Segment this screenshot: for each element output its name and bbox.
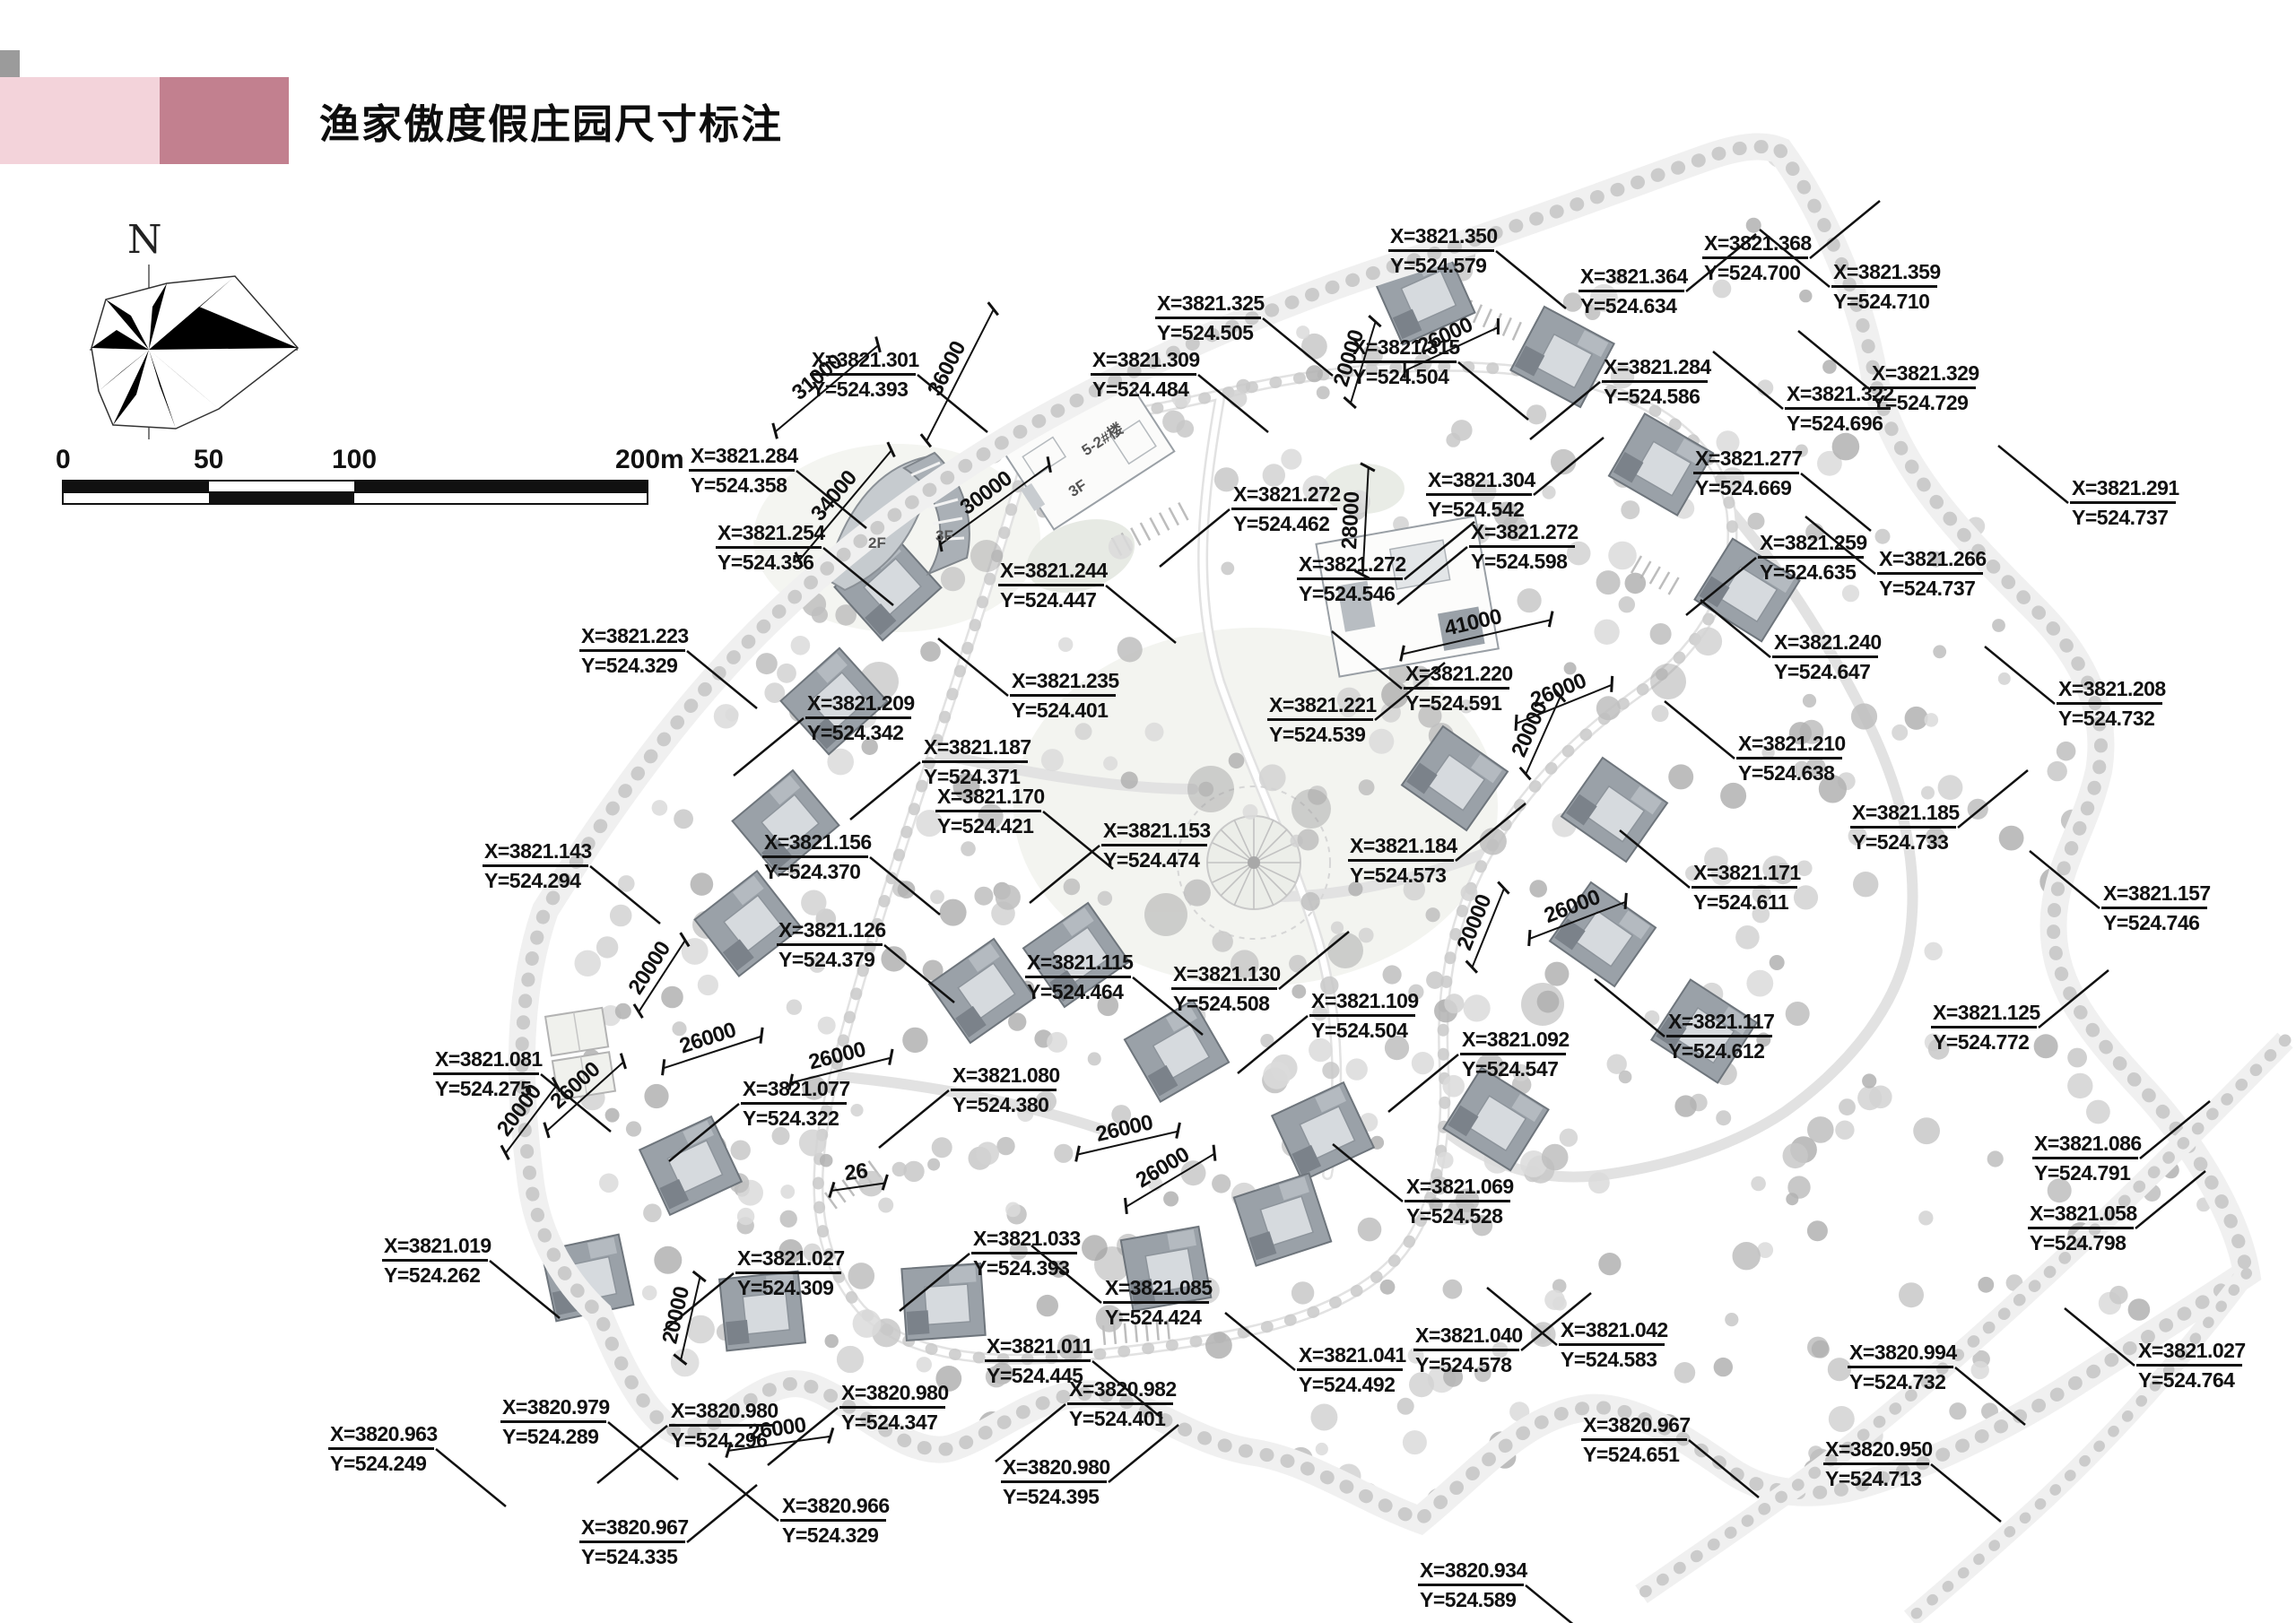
coord-x-value: X=3821.143 [483, 839, 588, 867]
building-label: 2F [868, 534, 886, 552]
coord-y-value: Y=524.737 [2070, 504, 2176, 530]
coord-label: X=3821.085Y=524.424 [1103, 1276, 1209, 1330]
coord-x-value: X=3821.184 [1348, 834, 1454, 862]
coord-x-value: X=3821.170 [935, 785, 1041, 812]
coord-x-value: X=3821.208 [2057, 677, 2162, 705]
coord-x-value: X=3821.081 [433, 1047, 539, 1075]
page-title: 渔家傲度假庄园尺寸标注 [319, 91, 783, 150]
coord-y-value: Y=524.772 [1931, 1028, 2037, 1055]
coord-x-value: X=3821.210 [1736, 732, 1842, 759]
dimension-label: 20000 [655, 1271, 701, 1360]
coord-y-value: Y=524.732 [1848, 1368, 1953, 1394]
coord-y-value: Y=524.696 [1785, 410, 1891, 436]
coord-y-value: Y=524.634 [1578, 292, 1684, 318]
coord-label: X=3821.284Y=524.358 [689, 444, 795, 498]
coord-y-value: Y=524.546 [1297, 580, 1403, 606]
coord-label: X=3821.272Y=524.598 [1469, 520, 1575, 574]
coord-label: X=3820.950Y=524.713 [1823, 1437, 1929, 1491]
coord-x-value: X=3820.980 [839, 1381, 945, 1409]
coord-label: X=3821.041Y=524.492 [1297, 1343, 1403, 1397]
dimension-label: 28000 [1336, 466, 1370, 575]
coord-x-value: X=3821.235 [1010, 669, 1116, 697]
coord-label: X=3821.364Y=524.634 [1578, 265, 1684, 318]
dimension-label: 20000 [616, 925, 686, 1012]
coord-x-value: X=3821.033 [971, 1227, 1077, 1254]
coord-x-value: X=3821.117 [1666, 1010, 1772, 1037]
coord-label: X=3820.966Y=524.329 [780, 1494, 886, 1548]
coord-label: X=3821.040Y=524.578 [1413, 1324, 1519, 1377]
coord-y-value: Y=524.700 [1702, 259, 1808, 285]
building-label: 3F [1065, 476, 1091, 501]
coord-y-value: Y=524.651 [1581, 1441, 1687, 1467]
coord-y-value: Y=524.578 [1413, 1351, 1519, 1377]
coord-label: X=3821.266Y=524.737 [1877, 547, 1983, 601]
coord-y-value: Y=524.464 [1025, 978, 1131, 1004]
coord-label: X=3821.117Y=524.612 [1666, 1010, 1772, 1063]
coord-label: X=3821.171Y=524.611 [1692, 861, 1797, 915]
coord-x-value: X=3821.080 [951, 1063, 1057, 1091]
coord-x-value: X=3821.153 [1101, 819, 1207, 846]
page-corner-mark [0, 50, 20, 77]
coord-y-value: Y=524.309 [735, 1274, 841, 1300]
coord-x-value: X=3821.157 [2101, 881, 2207, 909]
coord-label: X=3821.157Y=524.746 [2101, 881, 2207, 935]
coord-label: X=3820.963Y=524.249 [328, 1422, 434, 1476]
coord-x-value: X=3821.284 [1602, 355, 1708, 383]
coord-x-value: X=3820.967 [579, 1515, 685, 1543]
coord-x-value: X=3821.350 [1388, 224, 1494, 252]
coord-x-value: X=3821.220 [1404, 662, 1509, 690]
coord-x-value: X=3821.058 [2028, 1202, 2134, 1229]
coord-x-value: X=3821.322 [1785, 382, 1891, 410]
coord-x-value: X=3821.130 [1171, 962, 1277, 990]
coord-label: X=3821.109Y=524.504 [1309, 989, 1415, 1043]
coord-x-value: X=3821.223 [579, 624, 685, 652]
coord-x-value: X=3821.325 [1155, 291, 1261, 319]
coord-y-value: Y=524.401 [1010, 697, 1116, 723]
coord-y-value: Y=524.583 [1559, 1346, 1665, 1372]
coord-label: X=3821.130Y=524.508 [1171, 962, 1277, 1016]
header-band-light [0, 77, 160, 164]
coord-y-value: Y=524.401 [1067, 1405, 1173, 1431]
coord-label: X=3821.187Y=524.371 [922, 735, 1028, 789]
coord-label: X=3820.980Y=524.347 [839, 1381, 945, 1435]
coord-x-value: X=3821.309 [1091, 348, 1196, 376]
coord-x-value: X=3821.126 [777, 918, 883, 946]
coord-label: X=3821.080Y=524.380 [951, 1063, 1057, 1117]
coord-y-value: Y=524.335 [579, 1543, 685, 1569]
coord-x-value: X=3821.221 [1267, 693, 1373, 721]
coord-x-value: X=3821.359 [1831, 260, 1937, 288]
coord-x-value: X=3820.980 [1001, 1455, 1107, 1483]
dimension-label: 41000 [1396, 594, 1552, 655]
coord-x-value: X=3821.368 [1702, 231, 1808, 259]
dimension-label: 26000 [784, 1032, 891, 1084]
annotation-layer: X=3821.350Y=524.579X=3821.368Y=524.700X=… [0, 0, 2296, 1623]
coord-label: X=3821.115Y=524.464 [1025, 950, 1131, 1004]
coord-y-value: Y=524.424 [1103, 1304, 1209, 1330]
coord-x-value: X=3821.027 [2136, 1339, 2242, 1367]
coord-x-value: X=3821.069 [1405, 1175, 1510, 1202]
coord-label: X=3821.033Y=524.393 [971, 1227, 1077, 1280]
coord-x-value: X=3821.277 [1693, 447, 1799, 474]
coord-label: X=3821.185Y=524.733 [1850, 801, 1956, 855]
coord-label: X=3821.304Y=524.542 [1426, 468, 1532, 522]
coord-y-value: Y=524.294 [483, 867, 588, 893]
coord-y-value: Y=524.539 [1267, 721, 1373, 747]
coord-x-value: X=3821.041 [1297, 1343, 1403, 1371]
coord-x-value: X=3821.156 [762, 830, 868, 858]
coord-label: X=3821.027Y=524.764 [2136, 1339, 2242, 1393]
coord-x-value: X=3821.040 [1413, 1324, 1519, 1351]
scale-tick-label: 200m [615, 445, 684, 475]
coord-x-value: X=3821.019 [382, 1234, 488, 1262]
coord-y-value: Y=524.505 [1155, 319, 1261, 345]
coord-y-value: Y=524.746 [2101, 909, 2207, 935]
dimension-label: 26000 [655, 1011, 761, 1069]
coord-label: X=3821.092Y=524.547 [1460, 1028, 1566, 1081]
coord-label: X=3820.967Y=524.651 [1581, 1413, 1687, 1467]
coord-label: X=3821.086Y=524.791 [2032, 1132, 2138, 1185]
coord-label: X=3820.979Y=524.289 [500, 1395, 606, 1449]
scale-tick-label: 0 [56, 445, 71, 475]
coord-label: X=3821.277Y=524.669 [1693, 447, 1799, 500]
coord-x-value: X=3821.284 [689, 444, 795, 472]
coord-y-value: Y=524.528 [1405, 1202, 1510, 1228]
coord-label: X=3821.240Y=524.647 [1772, 630, 1878, 684]
dimension-label: 26000 [1519, 877, 1625, 940]
coord-y-value: Y=524.710 [1831, 288, 1937, 314]
coord-y-value: Y=524.421 [935, 812, 1041, 838]
coord-y-value: Y=524.573 [1348, 862, 1454, 888]
coord-x-value: X=3821.291 [2070, 476, 2176, 504]
coord-x-value: X=3821.187 [922, 735, 1028, 763]
coord-x-value: X=3820.982 [1067, 1377, 1173, 1405]
coord-y-value: Y=524.579 [1388, 252, 1494, 278]
coord-x-value: X=3820.994 [1848, 1341, 1953, 1368]
coord-y-value: Y=524.347 [839, 1409, 945, 1435]
site-plan-page: { "header": { "title": "渔家傲度假庄园尺寸标注", "b… [0, 0, 2296, 1623]
coord-y-value: Y=524.262 [382, 1262, 488, 1288]
coord-y-value: Y=524.732 [2057, 705, 2162, 731]
coord-label: X=3821.027Y=524.309 [735, 1246, 841, 1300]
coord-y-value: Y=524.322 [741, 1105, 847, 1131]
coord-x-value: X=3821.171 [1692, 861, 1797, 889]
coord-label: X=3821.077Y=524.322 [741, 1077, 847, 1131]
coord-x-value: X=3821.092 [1460, 1028, 1566, 1055]
coord-y-value: Y=524.647 [1772, 658, 1878, 684]
coord-label: X=3821.156Y=524.370 [762, 830, 868, 884]
coord-y-value: Y=524.542 [1426, 496, 1532, 522]
coord-y-value: Y=524.611 [1692, 889, 1797, 915]
coord-y-value: Y=524.447 [998, 586, 1104, 612]
coord-x-value: X=3820.963 [328, 1422, 434, 1450]
coord-label: X=3821.220Y=524.591 [1404, 662, 1509, 716]
coord-y-value: Y=524.395 [1001, 1483, 1107, 1509]
coord-x-value: X=3821.115 [1025, 950, 1131, 978]
scale-tick-label: 100 [332, 445, 377, 475]
coord-label: X=3820.980Y=524.395 [1001, 1455, 1107, 1509]
coord-x-value: X=3821.266 [1877, 547, 1983, 575]
coord-x-value: X=3820.934 [1418, 1558, 1524, 1586]
coord-y-value: Y=524.329 [780, 1522, 886, 1548]
coord-label: X=3820.994Y=524.732 [1848, 1341, 1953, 1394]
coord-label: X=3821.322Y=524.696 [1785, 382, 1891, 436]
coord-y-value: Y=524.370 [762, 858, 868, 884]
coord-label: X=3821.126Y=524.379 [777, 918, 883, 972]
coord-y-value: Y=524.462 [1231, 510, 1337, 536]
coord-label: X=3821.125Y=524.772 [1931, 1001, 2037, 1055]
coord-label: X=3821.019Y=524.262 [382, 1234, 488, 1288]
coord-label: X=3821.350Y=524.579 [1388, 224, 1494, 278]
coord-x-value: X=3821.085 [1103, 1276, 1209, 1304]
coord-x-value: X=3821.364 [1578, 265, 1684, 292]
coord-label: X=3821.221Y=524.539 [1267, 693, 1373, 747]
coord-y-value: Y=524.504 [1309, 1017, 1415, 1043]
coord-x-value: X=3821.272 [1231, 482, 1337, 510]
coord-y-value: Y=524.547 [1460, 1055, 1566, 1081]
coord-label: X=3820.967Y=524.335 [579, 1515, 685, 1569]
coord-x-value: X=3820.950 [1823, 1437, 1929, 1465]
coord-y-value: Y=524.393 [971, 1254, 1077, 1280]
coord-y-value: Y=524.669 [1693, 474, 1799, 500]
coord-label: X=3821.284Y=524.586 [1602, 355, 1708, 409]
coord-label: X=3821.309Y=524.484 [1091, 348, 1196, 402]
north-label: N [127, 217, 162, 263]
coord-label: X=3821.244Y=524.447 [998, 559, 1104, 612]
dimension-label: 26 [828, 1157, 885, 1192]
coord-label: X=3821.153Y=524.474 [1101, 819, 1207, 872]
coord-x-value: X=3821.109 [1309, 989, 1415, 1017]
coord-y-value: Y=524.638 [1736, 759, 1842, 785]
coord-label: X=3821.209Y=524.342 [805, 691, 911, 745]
coord-x-value: X=3821.027 [735, 1246, 841, 1274]
coord-label: X=3821.069Y=524.528 [1405, 1175, 1510, 1228]
coord-x-value: X=3820.966 [780, 1494, 886, 1522]
coord-y-value: Y=524.591 [1404, 690, 1509, 716]
coord-x-value: X=3821.244 [998, 559, 1104, 586]
coord-label: X=3821.272Y=524.462 [1231, 482, 1337, 536]
coord-label: X=3821.042Y=524.583 [1559, 1318, 1665, 1372]
coord-label: X=3821.368Y=524.700 [1702, 231, 1808, 285]
coord-y-value: Y=524.589 [1418, 1586, 1524, 1612]
coord-y-value: Y=524.289 [500, 1423, 606, 1449]
coord-label: X=3821.170Y=524.421 [935, 785, 1041, 838]
coord-y-value: Y=524.379 [777, 946, 883, 972]
coord-x-value: X=3821.086 [2032, 1132, 2138, 1159]
coord-x-value: X=3821.259 [1758, 531, 1864, 559]
coord-label: X=3821.291Y=524.737 [2070, 476, 2176, 530]
coord-y-value: Y=524.612 [1666, 1037, 1772, 1063]
coord-x-value: X=3821.042 [1559, 1318, 1665, 1346]
coord-y-value: Y=524.249 [328, 1450, 434, 1476]
coord-y-value: Y=524.329 [579, 652, 685, 678]
coord-label: X=3820.934Y=524.589 [1418, 1558, 1524, 1612]
coord-x-value: X=3821.304 [1426, 468, 1532, 496]
coord-x-value: X=3821.209 [805, 691, 911, 719]
coord-label: X=3821.359Y=524.710 [1831, 260, 1937, 314]
coord-label: X=3821.259Y=524.635 [1758, 531, 1864, 585]
coord-y-value: Y=524.358 [689, 472, 795, 498]
coord-y-value: Y=524.342 [805, 719, 911, 745]
coord-y-value: Y=524.474 [1101, 846, 1207, 872]
coord-label: X=3821.325Y=524.505 [1155, 291, 1261, 345]
coord-y-value: Y=524.508 [1171, 990, 1277, 1016]
coord-y-value: Y=524.598 [1469, 548, 1575, 574]
dimension-label: 20000 [1448, 879, 1505, 968]
coord-label: X=3821.210Y=524.638 [1736, 732, 1842, 785]
coord-y-value: Y=524.791 [2032, 1159, 2138, 1185]
coord-y-value: Y=524.586 [1602, 383, 1708, 409]
coord-label: X=3821.208Y=524.732 [2057, 677, 2162, 731]
coord-x-value: X=3821.185 [1850, 801, 1956, 829]
coord-x-value: X=3821.125 [1931, 1001, 2037, 1028]
coord-label: X=3821.143Y=524.294 [483, 839, 588, 893]
coord-x-value: X=3820.979 [500, 1395, 606, 1423]
coord-y-value: Y=524.635 [1758, 559, 1864, 585]
coord-x-value: X=3821.272 [1469, 520, 1575, 548]
coord-label: X=3821.223Y=524.329 [579, 624, 685, 678]
coord-y-value: Y=524.492 [1297, 1371, 1403, 1397]
coord-y-value: Y=524.713 [1823, 1465, 1929, 1491]
scale-tick-label: 50 [194, 445, 223, 475]
coord-y-value: Y=524.798 [2028, 1229, 2134, 1255]
coord-x-value: X=3821.011 [985, 1334, 1091, 1362]
coord-label: X=3820.982Y=524.401 [1067, 1377, 1173, 1431]
building-label: 5-2#楼 [1076, 416, 1126, 460]
coord-y-value: Y=524.484 [1091, 376, 1196, 402]
coord-label: X=3821.184Y=524.573 [1348, 834, 1454, 888]
coord-y-value: Y=524.733 [1850, 829, 1956, 855]
coord-y-value: Y=524.764 [2136, 1367, 2242, 1393]
coord-y-value: Y=524.737 [1877, 575, 1983, 601]
coord-x-value: X=3820.967 [1581, 1413, 1687, 1441]
coord-label: X=3821.058Y=524.798 [2028, 1202, 2134, 1255]
logo-tile [160, 77, 289, 164]
dimension-label: 26000 [1072, 1106, 1178, 1156]
coord-label: X=3821.235Y=524.401 [1010, 669, 1116, 723]
building-label: 3F [935, 527, 953, 545]
coord-x-value: X=3821.240 [1772, 630, 1878, 658]
coord-y-value: Y=524.380 [951, 1091, 1057, 1117]
